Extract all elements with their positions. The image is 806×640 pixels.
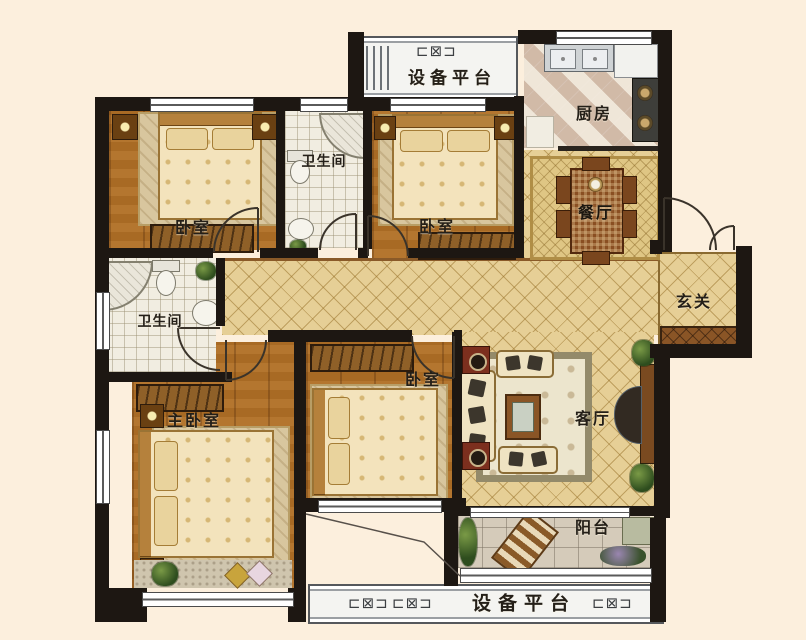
- bedroom3-wardrobe: [310, 344, 414, 372]
- master-nightstand: [140, 404, 164, 428]
- wall: [95, 372, 232, 382]
- window: [150, 98, 254, 112]
- dining-chair: [622, 210, 637, 238]
- dining-plate: [588, 177, 603, 192]
- master-pillow: [154, 441, 178, 491]
- bedroom1-bed: [158, 112, 262, 220]
- bedroom2-nightstand: [374, 116, 396, 140]
- window: [96, 292, 110, 350]
- wall: [514, 96, 524, 258]
- bedroom2-pillow: [447, 130, 490, 152]
- ac-unit-icon: ⊏⊠⊐: [416, 42, 457, 60]
- sofa-pillow: [531, 451, 548, 468]
- bedroom1-headboard: [160, 114, 260, 126]
- potted-plant: [459, 518, 477, 566]
- sofa-pillow: [505, 355, 521, 371]
- room-label-bathroom-left: 卫生间: [138, 311, 183, 331]
- room-label-platform-top: 设备平台: [408, 64, 496, 89]
- room-label-bathroom-top: 卫生间: [302, 151, 347, 171]
- kitchen-mat: [526, 116, 554, 148]
- kitchen-stove: [632, 78, 660, 142]
- sofa-pillow: [527, 355, 543, 371]
- sofa-pillow: [468, 379, 487, 398]
- room-label-bedroom-top-left: 卧室: [175, 214, 211, 238]
- master-headboard: [140, 432, 151, 557]
- void-boundary-line: [306, 514, 460, 576]
- door-entry-leaf: [710, 226, 734, 250]
- room-label-platform-bottom: 设备平台: [472, 589, 576, 616]
- wall: [658, 30, 672, 252]
- wall: [260, 248, 318, 258]
- vent-hatch: [366, 46, 392, 90]
- wall: [95, 588, 147, 622]
- wall: [216, 258, 225, 326]
- master-bed: [138, 430, 274, 558]
- dining-chair: [582, 157, 610, 171]
- master-pillow: [154, 496, 178, 546]
- bedroom2-nightstand: [494, 116, 516, 140]
- room-label-master-bedroom: 主卧室: [167, 407, 221, 431]
- hallway: [222, 258, 658, 335]
- potted-flowers: [600, 546, 646, 566]
- bedroom2-pillow: [400, 130, 443, 152]
- living-chaise: [498, 446, 558, 474]
- bedroom3-pillow: [328, 443, 350, 485]
- room-label-bedroom-bottom-middle: 卧室: [405, 366, 441, 390]
- wall: [444, 506, 458, 586]
- dining-chair: [556, 210, 571, 238]
- wall: [654, 346, 670, 518]
- dining-chair: [556, 176, 571, 204]
- kitchen-sink-counter: [544, 44, 614, 72]
- room-label-bedroom-top-middle: 卧室: [419, 213, 455, 237]
- ac-unit-icon: ⊏⊠⊐: [348, 594, 389, 612]
- window: [318, 500, 442, 513]
- ac-unit-icon: ⊏⊠⊐: [592, 594, 633, 612]
- dining-chair: [582, 251, 610, 265]
- potted-plant: [196, 262, 216, 280]
- living-side-table: [462, 442, 490, 470]
- stove-burner: [637, 115, 653, 131]
- bedroom3-headboard: [314, 390, 325, 495]
- bedroom1-pillow: [212, 128, 254, 150]
- bedroom1-nightstand: [252, 114, 278, 140]
- living-loveseat: [496, 350, 554, 378]
- window: [300, 98, 348, 112]
- wall-thin: [558, 146, 658, 151]
- sofa-pillow: [508, 451, 523, 466]
- bathroom-top-basin: [288, 218, 314, 240]
- wall: [650, 240, 662, 254]
- window: [96, 430, 110, 504]
- bedroom3-pillow: [328, 397, 350, 439]
- bay-window: [142, 592, 294, 607]
- wall: [358, 248, 368, 258]
- wall: [296, 330, 412, 342]
- bedroom1-pillow: [166, 128, 208, 150]
- bedroom2-bed: [392, 114, 498, 220]
- wall: [363, 111, 372, 249]
- wall: [650, 518, 666, 572]
- sofa-pillow: [468, 406, 487, 425]
- sink-basin: [550, 49, 576, 69]
- bedroom3-bed: [312, 388, 438, 496]
- dining-chair: [622, 176, 637, 204]
- wall: [452, 332, 462, 500]
- room-label-living: 客厅: [575, 405, 611, 429]
- wall: [650, 344, 752, 358]
- wall: [650, 570, 666, 622]
- room-label-balcony: 阳台: [575, 514, 611, 538]
- potted-plant: [152, 562, 178, 586]
- ac-unit-icon: ⊏⊠⊐: [392, 594, 433, 612]
- wall: [294, 330, 306, 612]
- living-side-table: [462, 346, 490, 374]
- wall: [95, 248, 213, 258]
- bedroom1-nightstand: [112, 114, 138, 140]
- stove-burner: [637, 85, 653, 101]
- sink-basin: [582, 49, 608, 69]
- wall: [408, 248, 520, 258]
- wall: [276, 111, 285, 249]
- wall: [736, 246, 752, 348]
- floor-plan: 设备平台 ⊏⊠⊐ 厨房 卧室 卫生间 卧室 餐厅 玄关 卫生间 主卧室 卧室 客…: [0, 0, 806, 640]
- room-label-dining: 餐厅: [578, 199, 614, 223]
- bedroom2-headboard: [394, 116, 496, 128]
- window: [556, 31, 652, 45]
- kitchen-cabinet: [614, 44, 658, 78]
- entry-shoe-cabinet: [660, 326, 738, 346]
- window: [390, 98, 486, 112]
- potted-plant: [630, 464, 654, 492]
- wall: [348, 32, 364, 98]
- room-label-kitchen: 厨房: [576, 100, 612, 124]
- window: [460, 568, 652, 583]
- living-coffee-table: [505, 394, 541, 440]
- room-label-entry: 玄关: [676, 288, 712, 312]
